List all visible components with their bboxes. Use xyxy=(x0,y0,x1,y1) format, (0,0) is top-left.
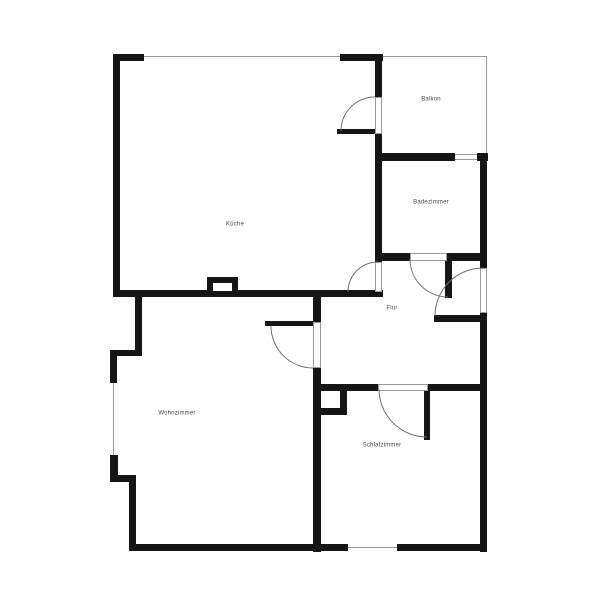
entrance-door-opening xyxy=(480,268,487,313)
wall-badezimmer-top-left xyxy=(375,153,455,161)
badezimmer-window-line-outer xyxy=(455,154,477,155)
wall-wohnzimmer-left-lower xyxy=(129,475,136,551)
schlafzimmer-door-arc xyxy=(379,389,427,437)
room-label-badezimmer: Badezimmer xyxy=(413,200,449,207)
kueche-door-arc xyxy=(348,262,378,292)
schlafzimmer-shaft-inner xyxy=(321,391,340,408)
wall-badezimmer-bottom-left xyxy=(375,253,410,261)
wall-bottom-right xyxy=(397,544,487,551)
wall-exterior-right-upper xyxy=(480,153,487,268)
room-label-schlafzimmer: Schlafzimmer xyxy=(363,443,402,450)
wall-flur-bottom-right xyxy=(428,384,487,391)
kueche-door-opening xyxy=(375,262,382,292)
wall-wohnzimmer-left-mid xyxy=(110,350,117,383)
floor-plan: Küche Balkon Badezimmer Flur Wohnzimmer … xyxy=(0,0,600,600)
badezimmer-door-leaf xyxy=(445,261,452,298)
room-label-balkon: Balkon xyxy=(421,97,441,104)
wohnzimmer-door-arc xyxy=(271,326,313,368)
room-label-wohnzimmer: Wohnzimmer xyxy=(158,411,195,418)
schlafzimmer-window-line xyxy=(348,547,397,548)
room-label-kueche: Küche xyxy=(226,222,244,229)
door-arcs xyxy=(0,0,600,600)
badezimmer-door-opening xyxy=(410,253,447,261)
wohnzimmer-window-line xyxy=(113,383,114,455)
balkon-railing-right xyxy=(486,56,487,154)
wall-exterior-left xyxy=(113,54,120,297)
wall-exterior-right-lower xyxy=(480,313,487,552)
schlafzimmer-door-opening xyxy=(378,384,428,391)
room-label-flur: Flur xyxy=(386,306,397,313)
entrance-door-arc xyxy=(435,268,483,316)
balkon-door-arc xyxy=(341,97,375,131)
wohnzimmer-door-leaf xyxy=(265,321,313,326)
wall-wohnzimmer-left-upper xyxy=(135,296,142,356)
wall-mid-vertical-upper xyxy=(375,54,382,97)
badezimmer-door-arc xyxy=(410,259,448,297)
wall-kueche-bottom xyxy=(113,290,383,297)
entrance-door-leaf xyxy=(434,315,483,322)
wall-badezimmer-bottom-right xyxy=(447,253,487,261)
balkon-door-leaf xyxy=(337,129,375,134)
wall-divider-upper xyxy=(313,290,321,323)
balkon-door-opening xyxy=(375,97,382,134)
wall-bottom-left xyxy=(129,544,348,551)
wall-wohnzimmer-left-stub xyxy=(110,455,118,477)
kueche-window-line xyxy=(144,56,340,57)
badezimmer-window-line-inner xyxy=(455,159,477,160)
schlafzimmer-door-leaf xyxy=(424,391,430,440)
wohnzimmer-door-opening xyxy=(313,322,321,368)
kueche-shaft-inner xyxy=(213,283,232,291)
balkon-railing-top xyxy=(383,56,487,57)
